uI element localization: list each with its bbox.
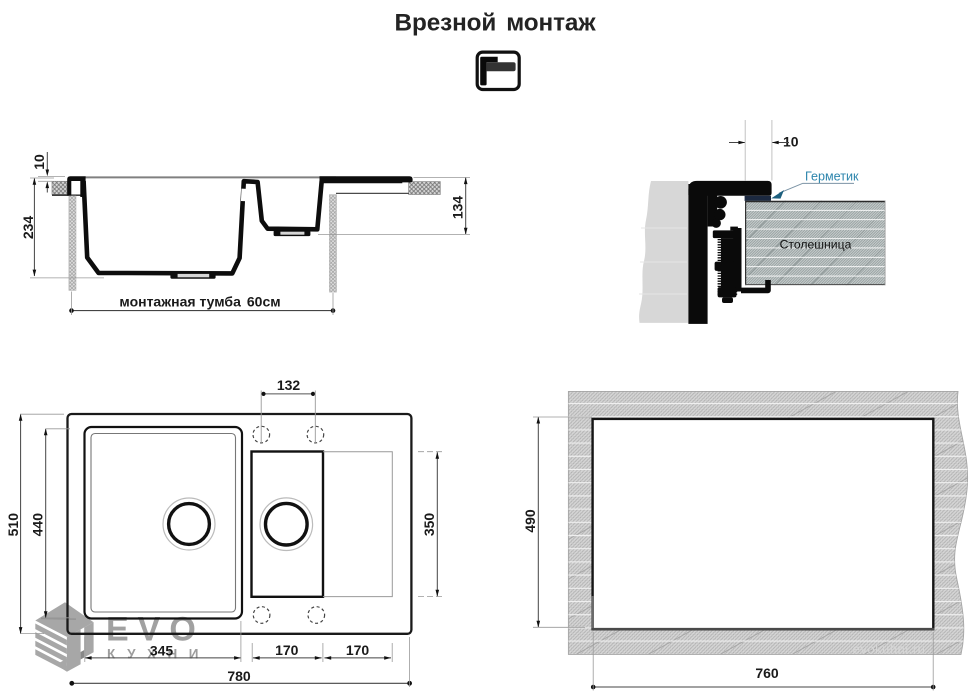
svg-text:134: 134 (449, 196, 465, 220)
svg-text:монтажная тумба60см: монтажная тумба60см (119, 294, 280, 310)
svg-text:345: 345 (150, 643, 174, 659)
svg-text:440: 440 (29, 513, 45, 537)
svg-text:760: 760 (755, 665, 779, 681)
svg-text:234: 234 (20, 216, 36, 240)
svg-text:10: 10 (783, 134, 799, 150)
svg-text:132: 132 (277, 377, 301, 393)
svg-text:780: 780 (227, 668, 251, 684)
svg-text:Герметик: Герметик (805, 170, 859, 184)
svg-text:510: 510 (5, 513, 21, 537)
svg-text:evokuhni.ru: evokuhni.ru (853, 642, 926, 657)
svg-text:490: 490 (522, 509, 538, 533)
svg-text:Врезноймонтаж: Врезноймонтаж (395, 10, 597, 37)
svg-text:350: 350 (421, 513, 437, 537)
svg-text:170: 170 (346, 642, 370, 658)
svg-text:170: 170 (275, 642, 299, 658)
svg-text:10: 10 (31, 154, 47, 170)
svg-text:Столешница: Столешница (780, 238, 852, 252)
